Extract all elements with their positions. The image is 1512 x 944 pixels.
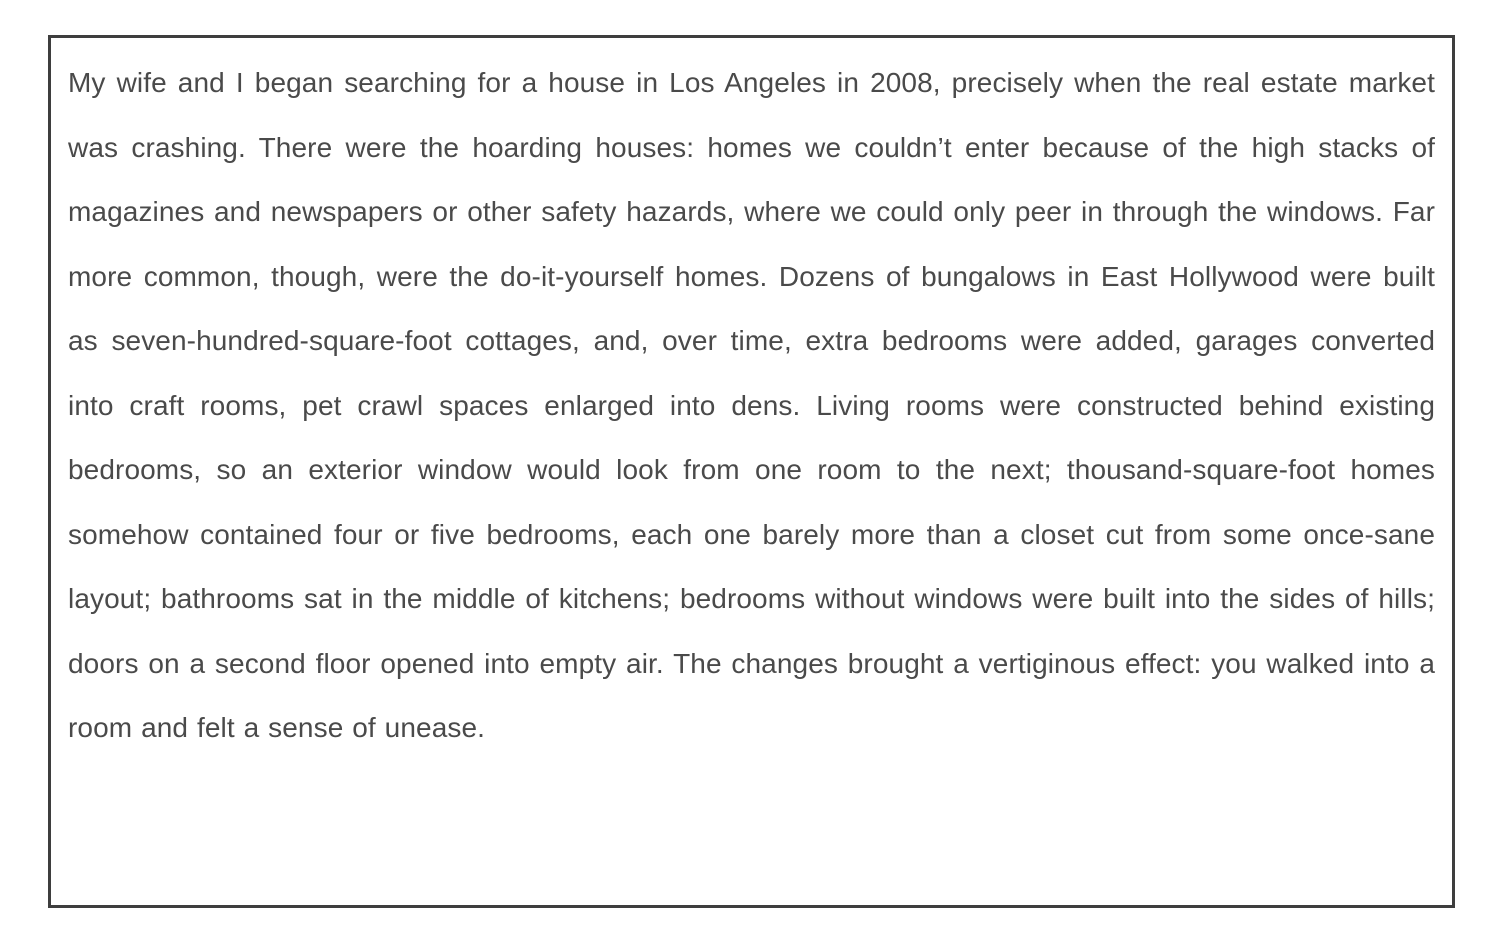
page: My wife and I began searching for a hous…	[0, 0, 1512, 944]
text-frame: My wife and I began searching for a hous…	[48, 35, 1455, 908]
passage-text: My wife and I began searching for a hous…	[68, 51, 1435, 761]
